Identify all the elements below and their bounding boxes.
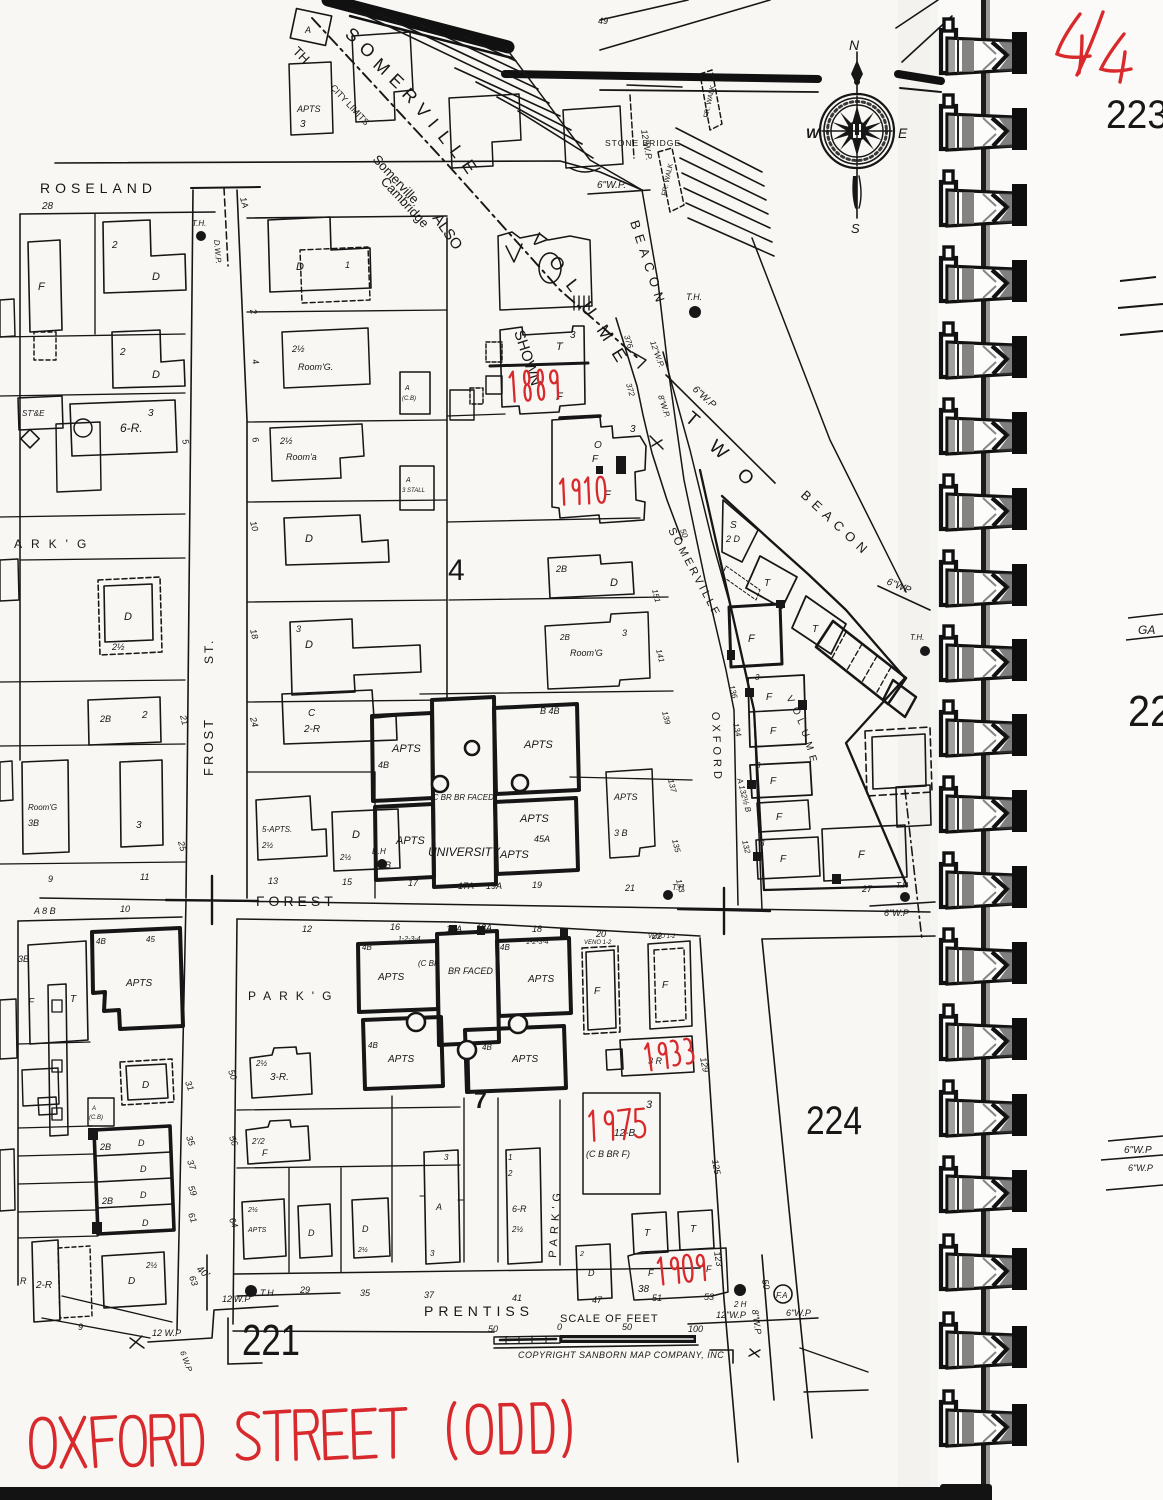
svg-text:D: D	[128, 1276, 135, 1287]
svg-text:22: 22	[1128, 687, 1163, 736]
svg-text:50: 50	[760, 1279, 772, 1291]
svg-text:10: 10	[120, 904, 130, 914]
svg-text:2 D: 2 D	[725, 534, 741, 544]
svg-text:D: D	[305, 533, 313, 545]
svg-text:3: 3	[136, 820, 142, 831]
svg-text:T: T	[690, 1224, 697, 1235]
svg-text:2½: 2½	[255, 1059, 267, 1068]
svg-text:9: 9	[48, 874, 53, 884]
svg-text:D: D	[124, 611, 132, 623]
svg-text:50: 50	[488, 1324, 498, 1334]
svg-text:F: F	[594, 986, 601, 997]
svg-text:APTS: APTS	[395, 835, 425, 847]
svg-text:D: D	[140, 1190, 147, 1200]
svg-text:VENO 1-2: VENO 1-2	[584, 940, 612, 946]
svg-text:F: F	[770, 776, 777, 787]
svg-text:F: F	[262, 1148, 268, 1158]
svg-text:T: T	[70, 994, 77, 1005]
svg-text:BR FACED: BR FACED	[448, 966, 493, 976]
svg-text:A: A	[435, 1202, 442, 1212]
svg-text:A: A	[405, 477, 411, 484]
svg-text:28: 28	[41, 201, 54, 212]
svg-text:ST.: ST.	[202, 638, 216, 664]
svg-text:3B: 3B	[28, 818, 39, 828]
svg-text:4B: 4B	[380, 860, 391, 870]
svg-text:3: 3	[756, 761, 761, 770]
svg-text:9: 9	[78, 1322, 83, 1332]
svg-text:16: 16	[390, 922, 400, 932]
svg-text:A 8 B: A 8 B	[33, 906, 56, 916]
svg-text:6"W.P: 6"W.P	[884, 908, 909, 918]
svg-text:2½: 2½	[111, 642, 125, 652]
svg-text:FOREST: FOREST	[256, 893, 337, 909]
svg-text:4B: 4B	[362, 943, 372, 952]
svg-text:4B: 4B	[368, 1041, 378, 1050]
svg-text:51: 51	[652, 1293, 662, 1303]
svg-text:13: 13	[268, 876, 278, 886]
svg-text:D: D	[142, 1218, 149, 1228]
svg-text:2B: 2B	[99, 1142, 111, 1152]
svg-text:Room'G.: Room'G.	[298, 362, 333, 372]
svg-text:3: 3	[444, 1153, 449, 1162]
svg-text:2½: 2½	[357, 1246, 368, 1254]
svg-text:6"W.P: 6"W.P	[1128, 1163, 1153, 1173]
svg-text:3: 3	[148, 408, 154, 419]
svg-text:0: 0	[557, 1322, 562, 1332]
svg-text:15: 15	[342, 877, 353, 887]
svg-text:4B: 4B	[96, 937, 106, 946]
svg-text:3: 3	[622, 628, 627, 638]
svg-text:APTS: APTS	[613, 792, 638, 802]
svg-text:2½: 2½	[145, 1261, 157, 1270]
svg-text:APTS: APTS	[125, 978, 152, 989]
svg-text:N: N	[849, 37, 860, 53]
svg-text:(C.B): (C.B)	[89, 1115, 103, 1121]
svg-text:7: 7	[474, 1087, 487, 1113]
svg-text:T.H: T.H	[672, 883, 684, 892]
svg-text:F: F	[648, 1268, 654, 1278]
svg-text:(C BR BR FACED): (C BR BR FACED)	[430, 793, 497, 802]
svg-text:O: O	[594, 440, 602, 451]
svg-text:2½: 2½	[261, 841, 273, 850]
svg-text:49: 49	[598, 16, 608, 26]
svg-text:D: D	[305, 639, 313, 651]
svg-text:3: 3	[760, 839, 765, 848]
svg-text:223: 223	[1106, 93, 1163, 137]
svg-text:PRENTISS: PRENTISS	[424, 1303, 534, 1319]
svg-text:T: T	[644, 1228, 651, 1239]
svg-text:D: D	[588, 1268, 595, 1278]
svg-text:100: 100	[688, 1324, 703, 1334]
svg-text:F: F	[776, 812, 783, 823]
svg-text:SCALE OF FEET: SCALE OF FEET	[560, 1313, 659, 1325]
svg-text:50: 50	[622, 1322, 632, 1332]
svg-text:D: D	[138, 1138, 145, 1148]
svg-text:T.H: T.H	[896, 881, 908, 890]
svg-text:F: F	[662, 980, 669, 991]
svg-text:ARK'G: ARK'G	[14, 537, 95, 551]
svg-text:3: 3	[646, 1099, 653, 1111]
svg-text:D: D	[610, 577, 618, 589]
svg-text:3 B: 3 B	[614, 828, 628, 838]
svg-text:2B: 2B	[555, 564, 567, 574]
svg-text:APTS: APTS	[511, 1054, 538, 1065]
svg-text:2½: 2½	[339, 853, 351, 862]
svg-text:D: D	[308, 1228, 315, 1238]
svg-text:PARK'G: PARK'G	[248, 989, 339, 1003]
svg-text:T.H.: T.H.	[192, 219, 206, 228]
svg-text:D: D	[362, 1224, 369, 1234]
svg-text:6"W.P: 6"W.P	[1124, 1145, 1152, 1156]
svg-text:R: R	[20, 1276, 27, 1286]
svg-text:VENO 1-2: VENO 1-2	[648, 934, 676, 940]
svg-text:A: A	[304, 25, 311, 35]
svg-text:4: 4	[448, 554, 465, 587]
svg-text:2½: 2½	[279, 436, 293, 446]
svg-text:2½: 2½	[511, 1225, 523, 1234]
svg-text:2B: 2B	[99, 714, 111, 724]
svg-text:12 W.P: 12 W.P	[152, 1328, 181, 1338]
svg-text:2: 2	[507, 1169, 513, 1178]
svg-text:5-APTS.: 5-APTS.	[262, 825, 292, 834]
svg-text:D: D	[140, 1164, 147, 1174]
svg-text:2: 2	[141, 710, 148, 721]
svg-text:12'W.P: 12'W.P	[222, 1294, 250, 1304]
svg-text:COPYRIGHT SANBORN MAP COMPAN: COPYRIGHT SANBORN MAP COMPANY, INC	[518, 1350, 724, 1360]
svg-text:45: 45	[146, 935, 155, 944]
svg-text:GA: GA	[1138, 623, 1155, 637]
svg-text:6-R: 6-R	[512, 1204, 527, 1214]
svg-text:APTS: APTS	[499, 849, 529, 861]
svg-text:1-2-3-4: 1-2-3-4	[398, 936, 421, 943]
svg-text:Room'G: Room'G	[570, 648, 603, 658]
svg-text:2'/2: 2'/2	[251, 1137, 265, 1146]
svg-text:221: 221	[242, 1316, 300, 1365]
svg-text:D: D	[152, 369, 160, 381]
svg-text:APTS: APTS	[247, 1227, 267, 1234]
svg-text:4B: 4B	[378, 760, 389, 770]
svg-text:2½: 2½	[291, 344, 305, 354]
svg-text:2½: 2½	[247, 1206, 258, 1214]
svg-text:APTS: APTS	[296, 104, 321, 114]
svg-text:3B: 3B	[18, 954, 29, 964]
svg-text:T.H.: T.H.	[910, 633, 924, 642]
svg-text:W: W	[806, 125, 821, 141]
svg-text:29: 29	[299, 1285, 310, 1295]
svg-text:D: D	[296, 261, 304, 273]
svg-text:3 STALL: 3 STALL	[402, 488, 425, 494]
svg-text:224: 224	[806, 1099, 862, 1143]
svg-text:(C.B): (C.B)	[402, 396, 416, 402]
svg-text:2: 2	[111, 240, 118, 251]
svg-text:3: 3	[430, 1249, 435, 1258]
svg-text:(C B BR F): (C B BR F)	[586, 1149, 630, 1159]
svg-text:FROST: FROST	[201, 717, 216, 776]
svg-text:F: F	[592, 454, 599, 465]
svg-text:D: D	[152, 271, 160, 283]
svg-text:F.A: F.A	[776, 1291, 787, 1300]
svg-text:(C BR: (C BR	[418, 959, 440, 968]
svg-text:11: 11	[140, 872, 149, 882]
svg-text:F: F	[770, 726, 777, 737]
svg-text:A: A	[404, 385, 410, 392]
svg-text:6-R.: 6-R.	[120, 421, 143, 435]
svg-text:45A: 45A	[534, 834, 550, 844]
svg-text:F: F	[28, 997, 35, 1008]
svg-text:2B: 2B	[559, 633, 570, 642]
svg-text:41: 41	[512, 1293, 522, 1303]
svg-text:21: 21	[624, 883, 635, 893]
svg-text:37: 37	[424, 1290, 435, 1300]
svg-text:18: 18	[532, 924, 542, 934]
svg-text:3-R.: 3-R.	[270, 1072, 289, 1083]
svg-text:3: 3	[570, 330, 576, 341]
svg-text:APTS: APTS	[527, 974, 554, 985]
svg-text:T.H: T.H	[260, 1288, 274, 1298]
svg-text:4B: 4B	[482, 1043, 492, 1052]
svg-text:T: T	[764, 578, 771, 589]
svg-text:F: F	[780, 854, 787, 865]
svg-text:APTS: APTS	[391, 743, 421, 755]
svg-text:3: 3	[755, 673, 760, 682]
svg-text:D: D	[352, 829, 360, 841]
svg-text:1: 1	[345, 260, 350, 270]
svg-text:38: 38	[638, 1284, 650, 1295]
svg-text:3: 3	[300, 119, 306, 130]
svg-text:1: 1	[508, 1153, 512, 1162]
svg-text:APTS: APTS	[523, 739, 553, 751]
svg-text:2-R: 2-R	[35, 1280, 52, 1291]
svg-text:UNIVERSITY: UNIVERSITY	[428, 845, 501, 859]
svg-text:APTS: APTS	[377, 972, 404, 983]
svg-text:S: S	[851, 221, 860, 236]
svg-text:2-R: 2-R	[303, 724, 320, 735]
svg-text:2 H: 2 H	[733, 1300, 747, 1309]
svg-text:3: 3	[630, 424, 636, 435]
svg-text:APTS: APTS	[519, 813, 549, 825]
svg-text:1-2-3-4: 1-2-3-4	[526, 939, 549, 946]
svg-text:2: 2	[579, 1251, 584, 1258]
svg-text:19: 19	[532, 880, 542, 890]
svg-text:F: F	[706, 1264, 712, 1274]
svg-text:Room'a: Room'a	[286, 452, 317, 462]
svg-text:E: E	[898, 125, 908, 141]
svg-text:53: 53	[704, 1292, 714, 1302]
svg-text:ST'&E: ST'&E	[22, 409, 45, 418]
svg-text:3: 3	[296, 624, 301, 634]
svg-text:S: S	[730, 520, 737, 531]
svg-text:B 4B: B 4B	[540, 706, 560, 716]
svg-text:C: C	[308, 708, 316, 719]
svg-text:12: 12	[302, 924, 312, 934]
svg-text:27: 27	[861, 884, 873, 894]
svg-text:47: 47	[592, 1295, 603, 1305]
svg-text:T.H.: T.H.	[686, 292, 702, 302]
svg-text:4B: 4B	[500, 943, 510, 952]
svg-text:ROSELAND: ROSELAND	[40, 180, 157, 196]
svg-text:D: D	[142, 1080, 149, 1091]
svg-text:12"W.P: 12"W.P	[716, 1310, 746, 1320]
svg-text:F: F	[766, 692, 773, 703]
svg-text:A: A	[91, 1106, 96, 1112]
svg-text:OXFORD: OXFORD	[709, 712, 723, 783]
svg-text:2B: 2B	[101, 1196, 113, 1206]
svg-text:T: T	[812, 624, 819, 635]
svg-text:2: 2	[119, 347, 126, 358]
svg-text:35: 35	[360, 1288, 371, 1298]
svg-text:APTS: APTS	[387, 1054, 414, 1065]
svg-text:Room'G: Room'G	[28, 803, 57, 812]
